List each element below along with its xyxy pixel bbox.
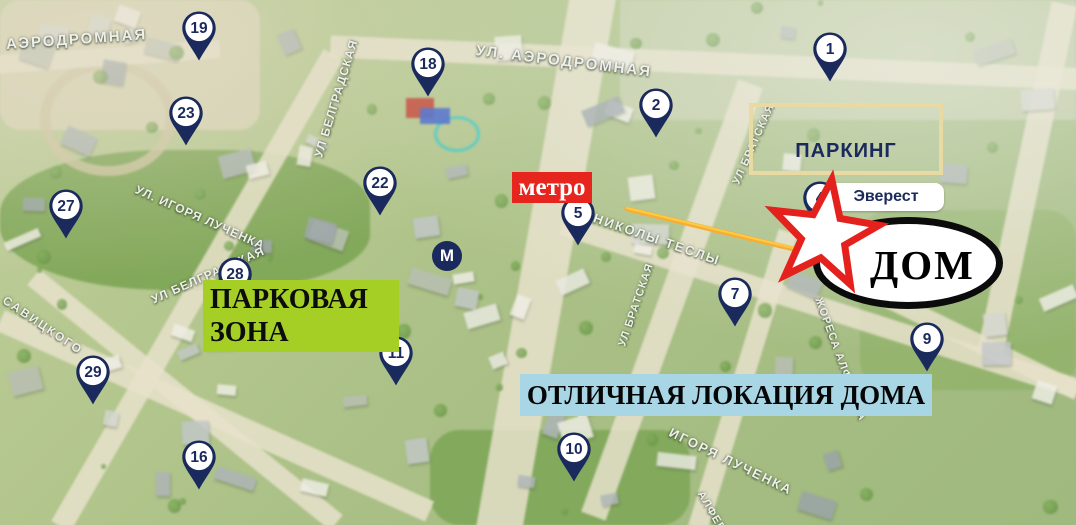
location-star-icon [758, 166, 898, 301]
svg-text:19: 19 [190, 20, 208, 37]
svg-text:2: 2 [652, 97, 661, 114]
svg-text:29: 29 [84, 364, 102, 381]
svg-text:5: 5 [574, 205, 583, 222]
park-zone-label: ПАРКОВАЯ ЗОНА [203, 280, 399, 352]
location-map: АЭРОДРОМНАЯУЛ. АЭРОДРОМНАЯУЛ БЕЛГРАДСКАЯ… [0, 0, 1076, 525]
svg-text:7: 7 [731, 286, 740, 303]
parking-area-box: ПАРКИНГ [749, 103, 943, 175]
map-pin-1: 1 [811, 31, 849, 83]
svg-text:27: 27 [57, 198, 74, 215]
map-pin-27: 27 [47, 188, 85, 240]
metro-station-icon: М [432, 241, 462, 271]
svg-text:1: 1 [826, 41, 835, 58]
svg-text:10: 10 [565, 441, 582, 458]
parking-label: ПАРКИНГ [795, 140, 897, 163]
svg-text:18: 18 [419, 56, 437, 73]
map-pin-2: 2 [637, 87, 675, 139]
map-pin-10: 10 [555, 431, 593, 483]
metro-label: метро [512, 172, 592, 203]
svg-text:22: 22 [371, 175, 388, 192]
map-pin-7: 7 [716, 276, 754, 328]
svg-text:16: 16 [190, 449, 208, 466]
svg-text:23: 23 [177, 105, 195, 122]
location-banner: ОТЛИЧНАЯ ЛОКАЦИЯ ДОМА [520, 374, 932, 416]
map-pin-22: 22 [361, 165, 399, 217]
map-pin-9: 9 [908, 321, 946, 373]
park-zone-line2: ЗОНА [210, 316, 399, 349]
map-pin-16: 16 [180, 439, 218, 491]
park-zone-line1: ПАРКОВАЯ [210, 283, 399, 316]
map-pin-29: 29 [74, 354, 112, 406]
map-pin-19: 19 [180, 10, 218, 62]
svg-text:9: 9 [923, 331, 932, 348]
map-pin-23: 23 [167, 95, 205, 147]
map-pin-18: 18 [409, 46, 447, 98]
